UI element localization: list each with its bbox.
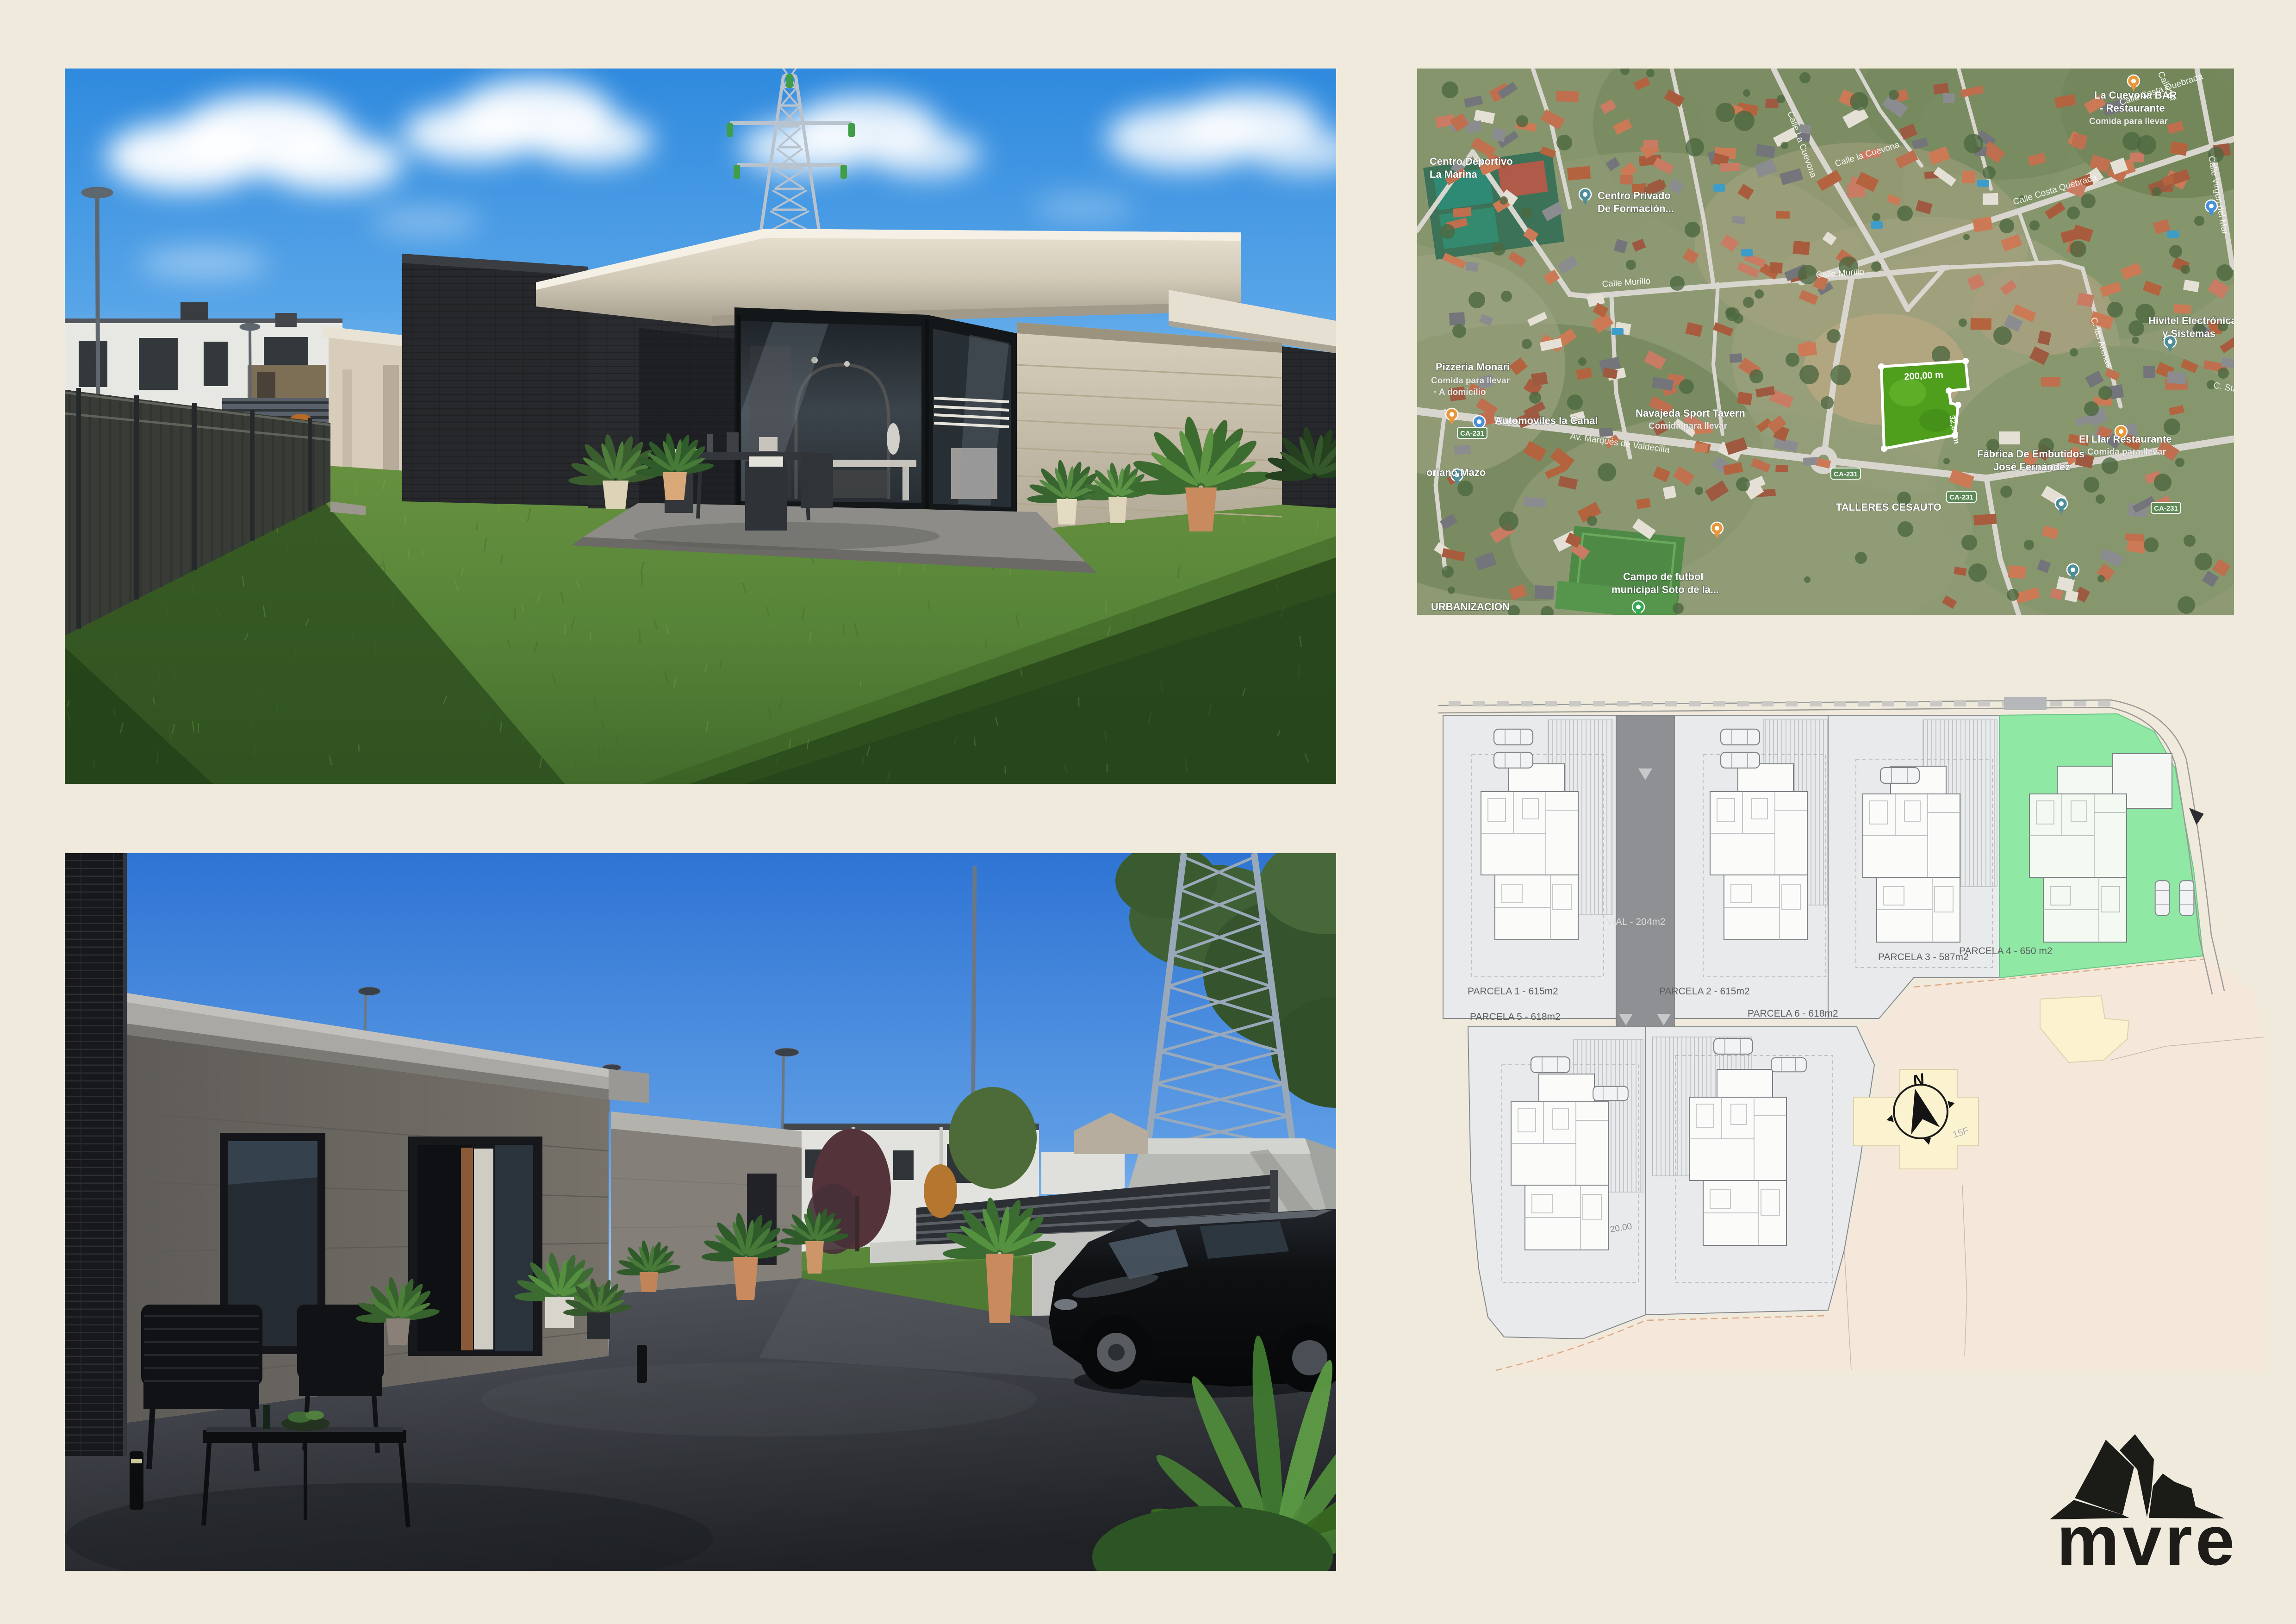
- svg-text:CA-231: CA-231: [1949, 493, 1973, 501]
- svg-text:y Sistemas: y Sistemas: [2162, 328, 2215, 339]
- svg-text:· A domicilio: · A domicilio: [1434, 387, 1486, 397]
- svg-text:CA-231: CA-231: [2154, 505, 2178, 512]
- svg-text:CA-231: CA-231: [1834, 470, 1858, 478]
- svg-text:Automoviles la Canal: Automoviles la Canal: [1495, 415, 1598, 426]
- svg-text:Hivitel Electrónica: Hivitel Electrónica: [2148, 315, 2234, 326]
- svg-text:PARCELA 3 - 587m2: PARCELA 3 - 587m2: [1878, 952, 1969, 962]
- svg-text:PARCELA 5 - 618m2: PARCELA 5 - 618m2: [1470, 1012, 1561, 1022]
- svg-text:200,00 m: 200,00 m: [1904, 370, 1944, 382]
- svg-text:El Llar Restaurante: El Llar Restaurante: [2079, 433, 2172, 445]
- svg-text:La Marina: La Marina: [1430, 169, 1477, 180]
- svg-text:PARCELA 6 - 618m2: PARCELA 6 - 618m2: [1748, 1008, 1838, 1019]
- svg-text:TALLERES CESAUTO: TALLERES CESAUTO: [1836, 501, 1941, 513]
- svg-text:oriano Mazo: oriano Mazo: [1426, 467, 1486, 478]
- svg-text:URBANIZACION: URBANIZACION: [1431, 601, 1510, 612]
- svg-text:Fábrica De Embutidos: Fábrica De Embutidos: [1977, 448, 2084, 460]
- svg-text:Campo de futbol: Campo de futbol: [1623, 571, 1704, 582]
- svg-text:PARCELA 4 - 650 m2: PARCELA 4 - 650 m2: [1959, 946, 2053, 956]
- svg-text:CA-231: CA-231: [1460, 430, 1484, 437]
- svg-text:PARCELA 1 - 615m2: PARCELA 1 - 615m2: [1468, 986, 1558, 997]
- svg-text:mvre: mvre: [2057, 1501, 2238, 1580]
- svg-text:VIAL - 204m2: VIAL - 204m2: [1606, 917, 1666, 927]
- svg-text:Centro Deportivo: Centro Deportivo: [1430, 156, 1513, 167]
- svg-text:PARCELA 2 - 615m2: PARCELA 2 - 615m2: [1659, 986, 1750, 997]
- svg-text:Centro Privado: Centro Privado: [1598, 190, 1671, 201]
- svg-text:Comida para llevar: Comida para llevar: [2089, 117, 2168, 126]
- svg-text:Comida para llevar: Comida para llevar: [1649, 421, 1728, 431]
- svg-text:municipal Soto de la...: municipal Soto de la...: [1612, 584, 1719, 595]
- svg-text:Comida para llevar: Comida para llevar: [2087, 447, 2166, 457]
- svg-text:De Formación...: De Formación...: [1598, 203, 1674, 214]
- svg-text:José Fernández: José Fernández: [1993, 461, 2070, 473]
- svg-text:Comida para llevar: Comida para llevar: [1431, 376, 1510, 386]
- svg-text:Navajeda Sport Tavern: Navajeda Sport Tavern: [1636, 407, 1745, 419]
- svg-text:Pizzeria Monari: Pizzeria Monari: [1436, 361, 1510, 373]
